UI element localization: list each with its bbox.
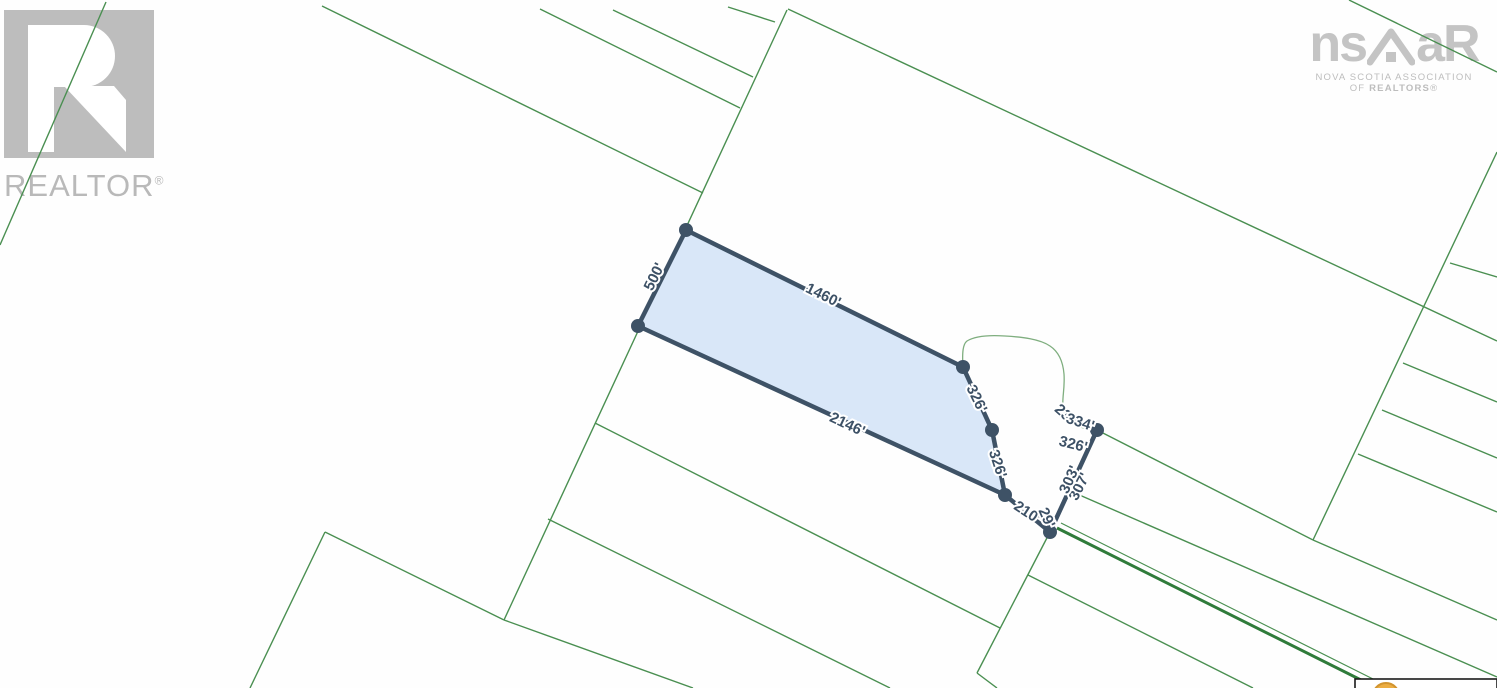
parcel-boundary-line bbox=[250, 532, 325, 688]
parcel-boundary-line bbox=[1382, 410, 1497, 458]
lot-vertex-dot bbox=[679, 223, 693, 237]
parcel-boundary-line bbox=[1358, 454, 1497, 512]
parcel-boundary-line bbox=[1450, 263, 1497, 277]
measurement-label: 334' bbox=[1064, 410, 1096, 435]
measurement-label: 326' bbox=[1057, 433, 1089, 456]
parcel-boundary-line bbox=[613, 10, 753, 77]
parcel-boundary-line bbox=[0, 2, 106, 245]
parcel-map-svg: 500'1460'2146'326'326'210'29'307'303'233… bbox=[0, 0, 1497, 688]
lot-vertex-dot bbox=[956, 360, 970, 374]
parcel-boundary-line bbox=[1349, 0, 1497, 72]
parcel-boundary-line bbox=[977, 673, 997, 688]
parcel-boundary-line bbox=[1028, 575, 1253, 688]
parcel-boundary-line bbox=[1068, 490, 1497, 677]
parcel-boundary-line bbox=[1403, 363, 1497, 402]
parcel-boundary-line bbox=[977, 532, 1050, 673]
parcel-boundary-line bbox=[548, 519, 890, 688]
lot-vertex-dot bbox=[998, 488, 1012, 502]
parcel-boundary-line bbox=[788, 9, 1497, 341]
parcel-boundary-line bbox=[504, 620, 693, 688]
lot-vertex-dot bbox=[631, 319, 645, 333]
parcel-boundary-line bbox=[1313, 540, 1497, 620]
parcel-boundary-line bbox=[540, 9, 740, 108]
parcel-boundary-line bbox=[325, 532, 504, 620]
parcel-boundary-line bbox=[1057, 528, 1377, 688]
map-canvas: REALTOR® ns aR NOVA SCOTIA ASSOCIATION O… bbox=[0, 0, 1497, 688]
parcel-boundary-line bbox=[322, 6, 703, 193]
lot-vertex-dot bbox=[985, 423, 999, 437]
parcel-boundary-line bbox=[1097, 430, 1313, 540]
parcel-boundary-line bbox=[728, 7, 775, 22]
highlighted-lot-polygon bbox=[638, 230, 1005, 495]
parcel-boundary-line bbox=[1313, 152, 1497, 540]
parcel-boundary-line bbox=[1061, 523, 1381, 683]
